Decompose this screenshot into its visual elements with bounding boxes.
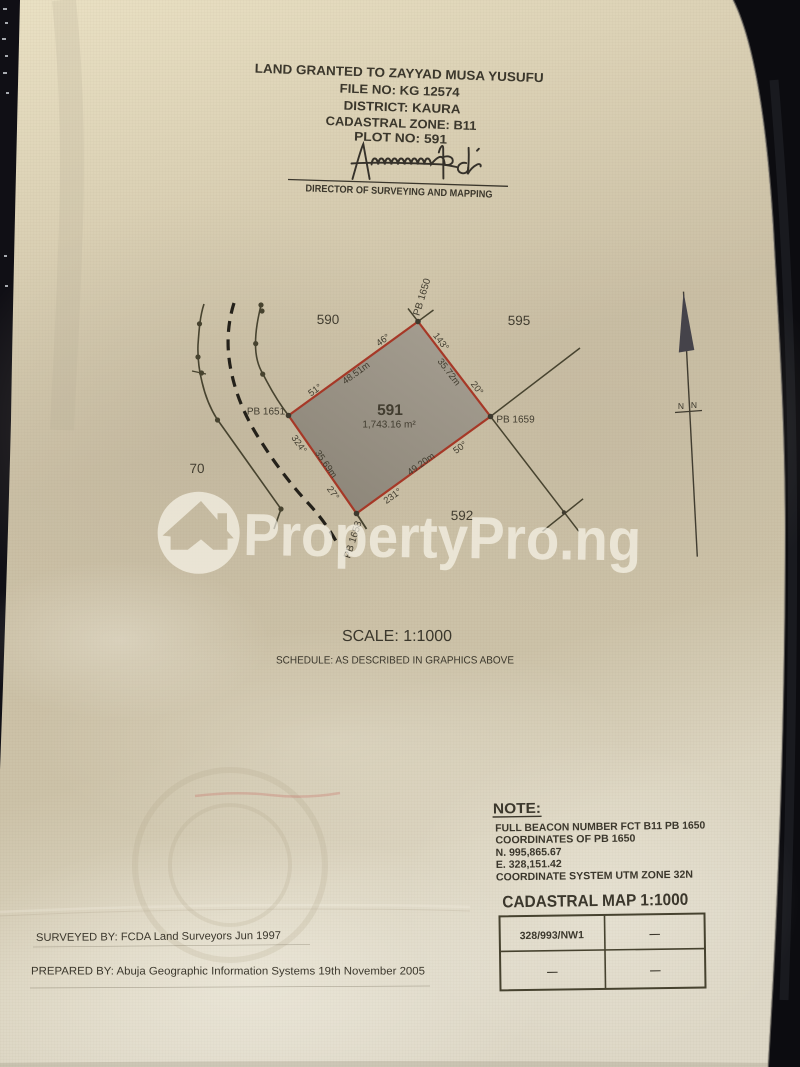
svg-text:328/993/NW1: 328/993/NW1 xyxy=(520,929,585,942)
svg-text:COORDINATES OF PB 1650: COORDINATES OF PB 1650 xyxy=(495,832,635,846)
svg-text:N. 995,865.67: N. 995,865.67 xyxy=(496,846,562,859)
svg-text:PB 1651: PB 1651 xyxy=(247,407,286,418)
svg-text:PropertyPro.ng: PropertyPro.ng xyxy=(243,501,642,574)
svg-text:—: — xyxy=(649,928,660,940)
svg-text:SCHEDULE: AS DESCRIBED IN GRAP: SCHEDULE: AS DESCRIBED IN GRAPHICS ABOVE xyxy=(276,655,514,667)
svg-text:N: N xyxy=(691,400,697,410)
svg-text:1,743.16 m²: 1,743.16 m² xyxy=(362,420,416,431)
svg-text:NOTE:: NOTE: xyxy=(493,801,541,818)
svg-text:PREPARED BY: Abuja Geographic: PREPARED BY: Abuja Geographic Informatio… xyxy=(31,966,425,978)
svg-text:PB 1659: PB 1659 xyxy=(496,415,535,426)
svg-text:SURVEYED BY: FCDA Land Surveyo: SURVEYED BY: FCDA Land Surveyors Jun 199… xyxy=(36,930,281,944)
svg-text:—: — xyxy=(547,966,558,978)
svg-text:590: 590 xyxy=(317,312,340,327)
svg-text:591: 591 xyxy=(377,402,403,419)
svg-text:E. 328,151.42: E. 328,151.42 xyxy=(496,858,562,871)
svg-text:CADASTRAL MAP 1:1000: CADASTRAL MAP 1:1000 xyxy=(502,891,688,912)
svg-text:70: 70 xyxy=(189,461,204,476)
svg-text:595: 595 xyxy=(508,313,531,328)
svg-text:N: N xyxy=(678,401,684,411)
svg-text:SCALE: 1:1000: SCALE: 1:1000 xyxy=(342,628,452,645)
svg-text:—: — xyxy=(650,965,661,977)
